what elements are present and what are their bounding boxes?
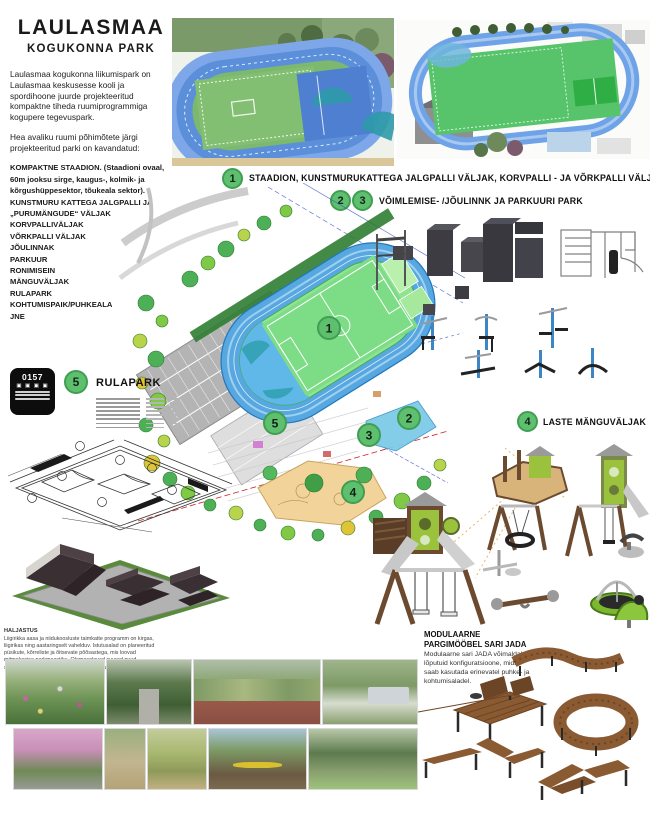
stamp-line	[15, 398, 50, 400]
poster-title: LAULASMAA	[10, 16, 172, 40]
stadium-render-perspective	[172, 18, 394, 166]
section-5-number: 5	[73, 375, 80, 389]
stamp-line	[15, 394, 50, 396]
section-4-label: LASTE MÄNGUVÄLJAK	[543, 417, 646, 427]
map-marker-5: 5	[272, 417, 279, 431]
poster-subtitle: KOGUKONNA PARK	[10, 43, 172, 55]
playground-equipment-renders	[355, 438, 650, 636]
photo-bench-flowerbed	[322, 659, 418, 725]
entry-code-stamp: 0157 ▣ ▣ ▣ ▣	[10, 368, 55, 415]
park-furniture-renders	[418, 640, 650, 808]
furniture-heading-1: MODULAARNE	[424, 630, 532, 640]
stamp-line	[15, 391, 50, 393]
landscape-notes-title: HALJASTUS	[4, 628, 162, 636]
skatepark-3d-render	[2, 534, 234, 632]
photo-blossom-path	[13, 728, 103, 790]
fitness-equipment-renders	[365, 212, 650, 384]
section-5-marker: 5	[64, 370, 88, 394]
intro-paragraph-1: Laulasmaa kogukonna liikumispark on Laul…	[10, 69, 172, 123]
photo-red-path-planting	[193, 659, 321, 725]
poster-canvas: LAULASMAA KOGUKONNA PARK Laulasmaa koguk…	[0, 0, 650, 815]
stamp-code: 0157	[10, 372, 55, 382]
photo-shrub-border	[308, 728, 418, 790]
section-5-label: RULAPARK	[96, 377, 161, 389]
intro-paragraph-2: Hea avaliku ruumi põhimõtete järgi proje…	[10, 132, 172, 154]
photo-hammock-playground	[208, 728, 307, 790]
section-1-label: STAADION, KUNSTMURUKATTEGA JALGPALLI VÄL…	[249, 173, 650, 183]
section-4-marker: 4	[517, 411, 538, 432]
photo-tree-alley	[106, 659, 192, 725]
photo-wildflower-meadow	[5, 659, 105, 725]
stadium-render-aerial	[397, 20, 650, 159]
skatepark-parts-list	[96, 398, 180, 428]
map-marker-2: 2	[406, 412, 413, 426]
map-marker-1: 1	[326, 322, 333, 336]
section-4-number: 4	[524, 416, 530, 428]
photo-autumn-alley	[147, 728, 207, 790]
photo-gravel-garden	[104, 728, 146, 790]
stamp-glyphs: ▣ ▣ ▣ ▣	[10, 383, 55, 389]
skatepark-technical-drawing	[2, 432, 234, 534]
